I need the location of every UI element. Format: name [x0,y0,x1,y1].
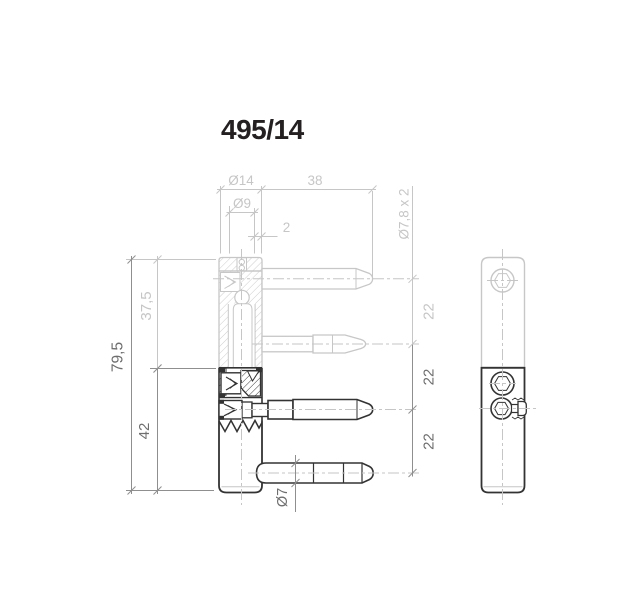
dim-label-dia-frame-pins: Ø7,8 x 2 [397,188,412,239]
dim-label-pin-spacing-mid: 22 [421,369,438,386]
dim-label-dia-inner: Ø9 [233,196,251,211]
dim-label-offset: 2 [283,220,291,235]
dim-label-total-height: 79,5 [110,342,127,372]
hex-set-screw-upper [221,373,241,394]
dimension-group-right: 22 22 22 [409,186,438,477]
front-view [219,258,373,493]
dim-label-dia-bottom-pin: Ø7 [275,488,291,507]
dim-label-pin-spacing-top: 22 [421,303,438,320]
dim-label-dia-head: Ø14 [228,173,254,188]
dimension-group-left: 79,5 37,5 42 [110,256,217,495]
dim-label-frame-part-height: 37,5 [138,291,155,320]
leaf-part-section [219,368,373,493]
frame-hex-screw [221,273,241,292]
dim-label-pin-length: 38 [307,173,322,188]
side-view [482,258,527,493]
dim-label-leaf-part-height: 42 [136,423,153,440]
product-code-title: 495/14 [221,114,305,145]
frame-part-section [219,258,373,368]
technical-drawing-page: Ø14 38 Ø9 2 Ø7,8 x 2 22 22 22 [0,0,643,614]
frame-slot [233,304,252,368]
technical-drawing-canvas: Ø14 38 Ø9 2 Ø7,8 x 2 22 22 22 [0,0,643,614]
dim-label-pin-spacing-bottom: 22 [421,433,438,450]
